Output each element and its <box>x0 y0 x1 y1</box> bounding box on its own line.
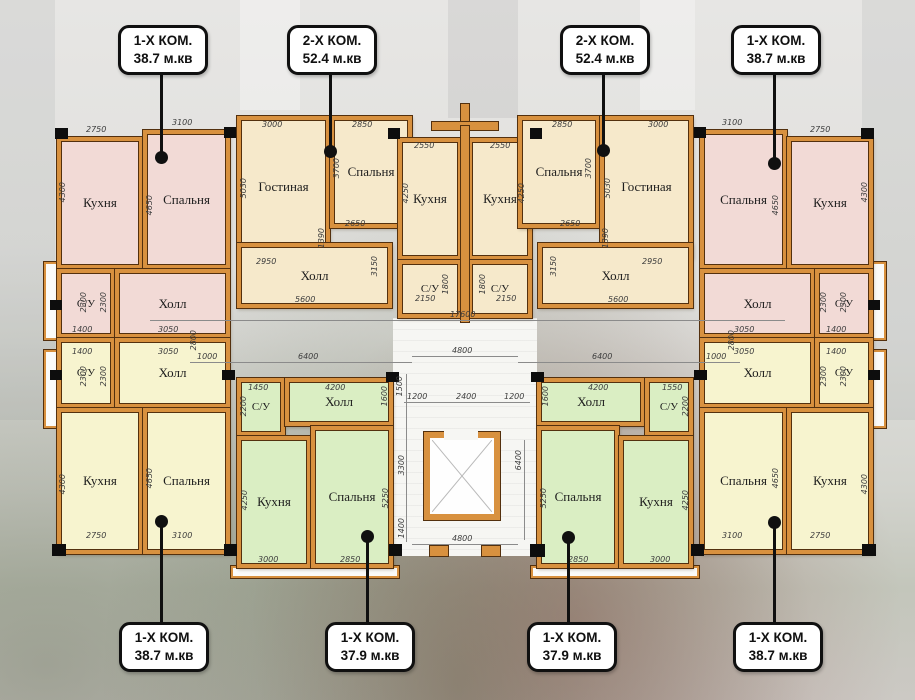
apartment-callout[interactable]: 2-Х КОМ. 52.4 м.кв <box>560 25 650 75</box>
callout-area: 38.7 м.кв <box>134 50 193 68</box>
dim-label: 2750 <box>86 126 106 134</box>
dim-label: 3100 <box>722 532 742 540</box>
dim-label: 3150 <box>550 256 558 276</box>
room-kitchen: Кухня <box>57 137 143 269</box>
callout-anchor-dot <box>768 516 781 529</box>
dim-label: 2150 <box>415 295 435 303</box>
structural-column <box>530 544 545 557</box>
structural-column <box>224 544 237 556</box>
room-label: Спальня <box>329 489 376 505</box>
dim-label: 2300 <box>820 366 828 386</box>
structural-column <box>224 127 236 138</box>
room-label: Кухня <box>639 494 673 510</box>
dim-label: 4650 <box>146 195 154 215</box>
callout-anchor-dot <box>155 151 168 164</box>
dim-label: 1500 <box>396 376 404 396</box>
room-label: Гостиная <box>621 179 671 195</box>
room-label: Кухня <box>413 191 447 207</box>
callout-area: 52.4 м.кв <box>303 50 362 68</box>
dim-label: 2650 <box>345 220 365 228</box>
dim-label: 3050 <box>158 348 178 356</box>
callout-anchor-dot <box>562 531 575 544</box>
room-label: Кухня <box>483 191 517 207</box>
room-label: Кухня <box>813 473 847 489</box>
room-living: Гостиная <box>600 116 693 258</box>
room-label: Холл <box>602 268 630 284</box>
dim-label: 4250 <box>241 490 249 510</box>
room-label: С/У <box>252 401 270 413</box>
callout-anchor-dot <box>324 145 337 158</box>
wall-stub <box>482 546 500 556</box>
elevator-cross-icon <box>432 440 492 512</box>
dim-label: 2300 <box>100 292 108 312</box>
structural-column <box>530 128 542 139</box>
structural-column <box>694 370 707 380</box>
callout-leader-line <box>567 538 570 622</box>
dim-label: 2550 <box>414 142 434 150</box>
dim-label: 2850 <box>568 556 588 564</box>
callout-type: 1-Х КОМ. <box>543 629 602 647</box>
dim-label: 2800 <box>190 330 198 350</box>
dim-label: 4250 <box>682 490 690 510</box>
dimension-line <box>412 544 518 545</box>
dim-label: 3050 <box>734 348 754 356</box>
callout-type: 1-Х КОМ. <box>747 32 806 50</box>
dim-label: 3300 <box>398 455 406 475</box>
apartment-callout[interactable]: 2-Х КОМ. 52.4 м.кв <box>287 25 377 75</box>
dim-label: 2200 <box>682 396 690 416</box>
dim-label: 2850 <box>552 121 572 129</box>
apartment-callout[interactable]: 1-Х КОМ. 38.7 м.кв <box>733 622 823 672</box>
room-hall: Холл <box>700 269 815 338</box>
dim-label: 2750 <box>810 532 830 540</box>
callout-area: 38.7 м.кв <box>747 50 806 68</box>
dim-label: 3000 <box>650 556 670 564</box>
dim-label: 2950 <box>256 258 276 266</box>
structural-column <box>868 300 880 310</box>
callout-area: 52.4 м.кв <box>576 50 635 68</box>
room-label: Спальня <box>720 192 767 208</box>
dimension-line <box>404 402 530 403</box>
dim-label: 1390 <box>602 228 610 248</box>
callout-leader-line <box>602 69 605 151</box>
dim-label: 5250 <box>540 488 548 508</box>
room-label: Спальня <box>555 489 602 505</box>
structural-column <box>691 544 704 556</box>
callout-area: 38.7 м.кв <box>135 647 194 665</box>
dim-label: 4800 <box>452 347 472 355</box>
room-label: Спальня <box>163 192 210 208</box>
room-label: Холл <box>325 394 353 410</box>
dim-label: 1550 <box>662 384 682 392</box>
dim-label: 3000 <box>262 121 282 129</box>
balcony <box>872 350 886 428</box>
dim-label: 1600 <box>381 386 389 406</box>
room-kitchen: Кухня <box>787 137 873 269</box>
structural-column <box>694 127 706 138</box>
callout-area: 38.7 м.кв <box>749 647 808 665</box>
dimension-line <box>518 362 740 363</box>
wall-stub <box>461 126 469 322</box>
dim-label: 3050 <box>158 326 178 334</box>
structural-column <box>50 300 62 310</box>
callout-anchor-dot <box>597 144 610 157</box>
dim-label: 1450 <box>248 384 268 392</box>
dim-label: 1400 <box>826 326 846 334</box>
structural-column <box>862 544 876 556</box>
dim-label: 4650 <box>772 195 780 215</box>
dim-label: 2300 <box>80 366 88 386</box>
dim-label: 2650 <box>560 220 580 228</box>
room-label: Холл <box>744 296 772 312</box>
dim-label: 5250 <box>382 488 390 508</box>
structural-column <box>388 128 400 139</box>
callout-area: 37.9 м.кв <box>341 647 400 665</box>
wall-stub <box>430 546 448 556</box>
apartment-callout[interactable]: 1-Х КОМ. 38.7 м.кв <box>119 622 209 672</box>
dim-label: 2300 <box>820 292 828 312</box>
dim-label: 2950 <box>642 258 662 266</box>
apartment-callout[interactable]: 1-Х КОМ. 38.7 м.кв <box>118 25 208 75</box>
apartment-callout[interactable]: 1-Х КОМ. 37.9 м.кв <box>527 622 617 672</box>
callout-type: 1-Х КОМ. <box>135 629 194 647</box>
dim-label: 3700 <box>333 158 341 178</box>
dim-label: 4200 <box>588 384 608 392</box>
callout-leader-line <box>773 69 776 164</box>
callout-leader-line <box>160 69 163 158</box>
dimension-line <box>150 320 785 321</box>
dim-label: 6400 <box>515 450 523 470</box>
callout-anchor-dot <box>155 515 168 528</box>
callout-area: 37.9 м.кв <box>543 647 602 665</box>
structural-column <box>222 370 235 380</box>
callout-leader-line <box>160 522 163 622</box>
dim-label: 1400 <box>398 518 406 538</box>
dim-label: 1400 <box>72 348 92 356</box>
room-label: Кухня <box>83 473 117 489</box>
dim-label: 2400 <box>456 393 476 401</box>
dim-label: 3050 <box>734 326 754 334</box>
dim-label: 2300 <box>840 292 848 312</box>
dimension-line <box>412 356 518 357</box>
dim-label: 3100 <box>172 119 192 127</box>
structural-column <box>52 544 66 556</box>
room-hall: Холл <box>700 338 815 408</box>
dim-label: 3000 <box>258 556 278 564</box>
callout-leader-line <box>366 537 369 622</box>
dim-label: 5030 <box>604 178 612 198</box>
room-label: Холл <box>301 268 329 284</box>
dim-label: 6400 <box>592 353 612 361</box>
dim-label: 2550 <box>490 142 510 150</box>
room-label: Холл <box>159 296 187 312</box>
callout-anchor-dot <box>768 157 781 170</box>
dim-label: 1000 <box>197 353 217 361</box>
dim-label: 17600 <box>450 311 475 319</box>
dim-label: 6400 <box>298 353 318 361</box>
dim-label: 2750 <box>810 126 830 134</box>
callout-type: 1-Х КОМ. <box>134 32 193 50</box>
balcony <box>44 350 58 428</box>
room-label: Холл <box>577 394 605 410</box>
dim-label: 1400 <box>826 348 846 356</box>
structural-column <box>389 544 402 556</box>
dim-label: 4200 <box>325 384 345 392</box>
dim-label: 4250 <box>518 183 526 203</box>
dim-label: 1400 <box>72 326 92 334</box>
structural-column <box>861 128 874 139</box>
dim-label: 2300 <box>80 292 88 312</box>
dim-label: 2750 <box>86 532 106 540</box>
dim-label: 4250 <box>402 183 410 203</box>
dim-label: 1390 <box>318 228 326 248</box>
room-bedroom: Спальня <box>143 130 230 269</box>
callout-type: 1-Х КОМ. <box>341 629 400 647</box>
callout-leader-line <box>329 69 332 152</box>
dim-label: 1200 <box>504 393 524 401</box>
background-facade-bar <box>448 0 518 118</box>
room-label: Холл <box>159 365 187 381</box>
dim-label: 4800 <box>452 535 472 543</box>
floor-plan-canvas: Кухня Спальня С/У Холл Гостиная Спальня … <box>0 0 915 700</box>
dimension-line <box>524 440 525 540</box>
apartment-callout[interactable]: 1-Х КОМ. 37.9 м.кв <box>325 622 415 672</box>
callout-anchor-dot <box>361 530 374 543</box>
callout-type: 2-Х КОМ. <box>576 32 635 50</box>
dim-label: 3150 <box>371 256 379 276</box>
dim-label: 4300 <box>861 474 869 494</box>
structural-column <box>868 370 880 380</box>
callout-type: 1-Х КОМ. <box>749 629 808 647</box>
dim-label: 3700 <box>585 158 593 178</box>
dim-label: 2300 <box>100 366 108 386</box>
dim-label: 2200 <box>240 396 248 416</box>
room-bedroom: Спальня <box>537 426 619 568</box>
callout-leader-line <box>773 523 776 622</box>
room-label: Спальня <box>348 164 395 180</box>
dim-label: 2300 <box>840 366 848 386</box>
room-label: Кухня <box>813 195 847 211</box>
room-label: С/У <box>660 401 678 413</box>
room-label: Кухня <box>257 494 291 510</box>
apartment-callout[interactable]: 1-Х КОМ. 38.7 м.кв <box>731 25 821 75</box>
room-label: Гостиная <box>258 179 308 195</box>
dim-label: 1800 <box>479 274 487 294</box>
dim-label: 3000 <box>648 121 668 129</box>
callout-type: 2-Х КОМ. <box>303 32 362 50</box>
dim-label: 4650 <box>772 468 780 488</box>
room-label: Холл <box>744 365 772 381</box>
dim-label: 4300 <box>59 474 67 494</box>
dimension-line <box>190 362 412 363</box>
dim-label: 3100 <box>722 119 742 127</box>
room-label: Кухня <box>83 195 117 211</box>
elevator-door-gap <box>444 430 478 440</box>
dim-label: 1600 <box>542 386 550 406</box>
dim-label: 2150 <box>496 295 516 303</box>
dim-label: 5030 <box>240 178 248 198</box>
room-label: Спальня <box>163 473 210 489</box>
dim-label: 3100 <box>172 532 192 540</box>
dim-label: 1200 <box>407 393 427 401</box>
dim-label: 4650 <box>146 468 154 488</box>
dim-label: 2850 <box>352 121 372 129</box>
room-label: Спальня <box>536 164 583 180</box>
structural-column <box>50 370 62 380</box>
room-label: Спальня <box>720 473 767 489</box>
dim-label: 1800 <box>442 274 450 294</box>
dim-label: 4300 <box>861 182 869 202</box>
dim-label: 2850 <box>340 556 360 564</box>
structural-column <box>55 128 68 139</box>
structural-column <box>531 372 544 382</box>
dim-label: 5600 <box>608 296 628 304</box>
dim-label: 1000 <box>706 353 726 361</box>
dim-label: 5600 <box>295 296 315 304</box>
dim-label: 4300 <box>59 182 67 202</box>
